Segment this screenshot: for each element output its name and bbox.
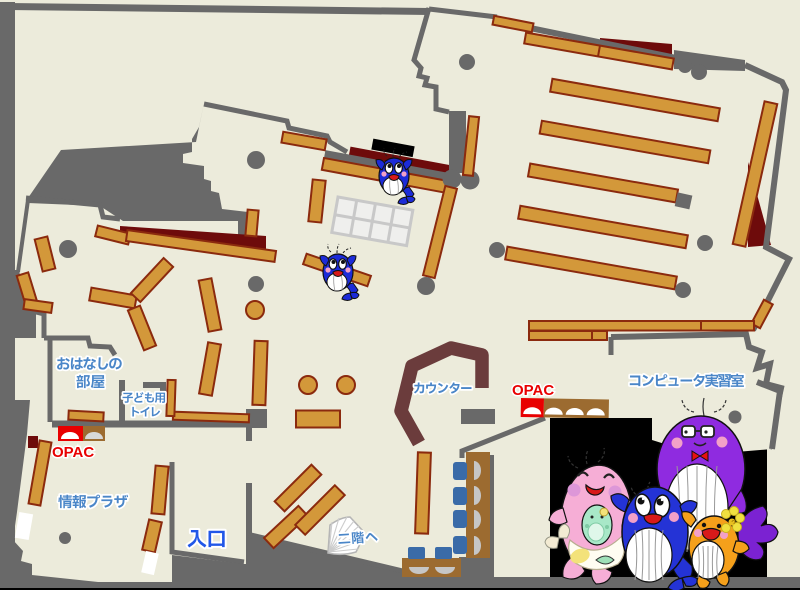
svg-text:OPAC: OPAC	[512, 382, 554, 399]
svg-text:OPAC: OPAC	[52, 444, 94, 461]
